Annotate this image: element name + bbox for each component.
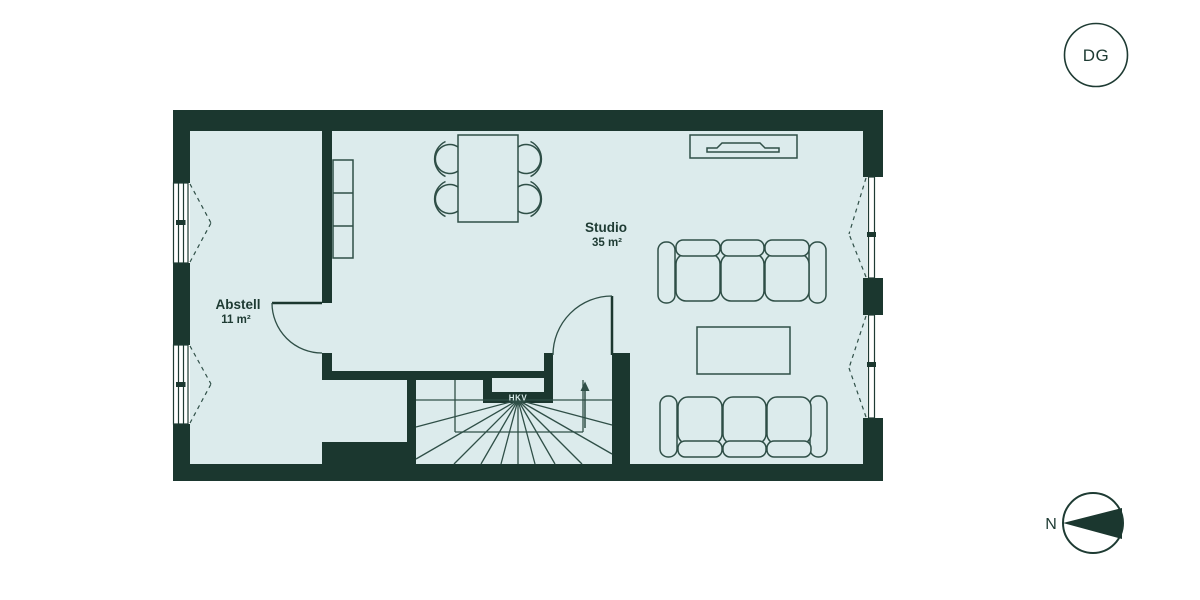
studio-label: Studio <box>585 220 627 235</box>
abstell-label: Abstell <box>215 297 260 312</box>
abstell-door-opening <box>322 303 332 353</box>
room-label-studio: Studio 35 m² <box>585 220 627 249</box>
window-pivot-tick <box>867 362 876 367</box>
abstell-nook-floor <box>322 380 407 442</box>
stair-door-pier <box>612 353 630 464</box>
wall-shelf <box>333 160 353 258</box>
window-pivot-tick <box>176 382 186 387</box>
floor-level-badge: DG <box>1065 24 1128 87</box>
window-pivot-tick <box>867 232 876 237</box>
hkv-label: HKV <box>509 394 528 403</box>
sofa-top <box>658 240 826 303</box>
compass: N <box>1045 493 1123 553</box>
hkv-niche-floor <box>492 378 544 392</box>
abstell-area: 11 m² <box>221 314 251 326</box>
stair-door-threshold <box>553 353 612 380</box>
sofa-bottom <box>660 396 827 457</box>
window-pivot-tick <box>176 220 186 225</box>
floor-level-label: DG <box>1083 46 1110 65</box>
hkv-wall-left-pier <box>483 378 492 392</box>
compass-north-label: N <box>1045 516 1057 533</box>
studio-area: 35 m² <box>592 237 622 249</box>
floor-plan-page: HKV <box>0 0 1200 600</box>
floor-plan-drawing: HKV <box>0 0 1200 600</box>
dining-table <box>458 135 518 222</box>
